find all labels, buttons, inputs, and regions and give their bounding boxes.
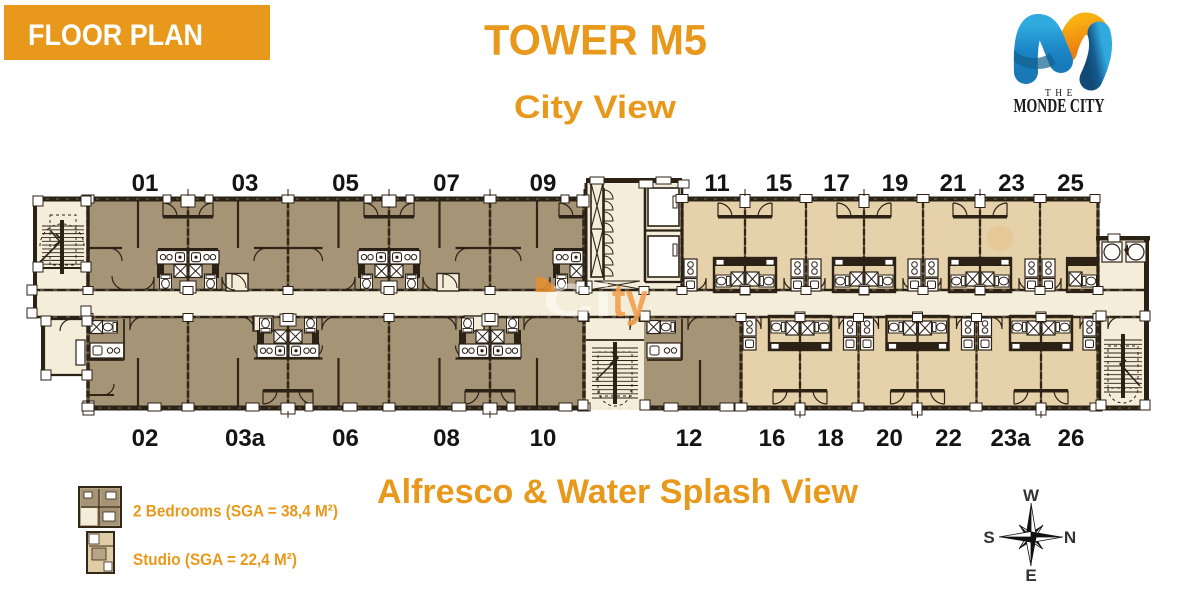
- svg-text:11: 11: [704, 170, 729, 197]
- svg-text:S: S: [983, 528, 994, 547]
- svg-text:20: 20: [876, 425, 903, 452]
- svg-text:FLOOR PLAN: FLOOR PLAN: [28, 19, 203, 52]
- svg-text:22: 22: [935, 425, 962, 452]
- svg-text:18: 18: [817, 425, 844, 452]
- svg-text:25: 25: [1057, 170, 1084, 197]
- svg-text:E: E: [1025, 566, 1036, 585]
- svg-text:MONDE CITY: MONDE CITY: [1014, 95, 1105, 117]
- svg-text:ty: ty: [612, 274, 648, 326]
- svg-text:17: 17: [823, 170, 850, 197]
- svg-text:03: 03: [232, 170, 259, 197]
- svg-text:06: 06: [332, 425, 359, 452]
- svg-text:Ci: Ci: [543, 274, 613, 326]
- svg-text:07: 07: [433, 170, 460, 197]
- svg-text:16: 16: [759, 425, 786, 452]
- svg-text:23: 23: [998, 170, 1025, 197]
- svg-text:09: 09: [530, 170, 557, 197]
- svg-text:10: 10: [530, 425, 557, 452]
- svg-text:23a: 23a: [990, 425, 1031, 452]
- svg-text:19: 19: [882, 170, 909, 197]
- svg-text:15: 15: [766, 170, 793, 197]
- svg-text:City View: City View: [514, 89, 676, 125]
- svg-text:02: 02: [132, 425, 159, 452]
- svg-text:03a: 03a: [225, 425, 266, 452]
- svg-text:08: 08: [433, 425, 460, 452]
- svg-text:Studio (SGA = 22,4 M²): Studio (SGA = 22,4 M²): [133, 550, 297, 569]
- svg-text:2 Bedrooms (SGA = 38,4 M²): 2 Bedrooms (SGA = 38,4 M²): [133, 502, 338, 521]
- svg-text:26: 26: [1058, 425, 1085, 452]
- svg-text:TOWER M5: TOWER M5: [484, 17, 707, 65]
- svg-text:W: W: [1023, 486, 1040, 505]
- svg-text:N: N: [1064, 528, 1076, 547]
- svg-text:21: 21: [940, 170, 967, 197]
- svg-text:12: 12: [676, 425, 703, 452]
- svg-text:05: 05: [332, 170, 359, 197]
- svg-text:01: 01: [132, 170, 159, 197]
- svg-text:Alfresco & Water Splash View: Alfresco & Water Splash View: [377, 473, 859, 511]
